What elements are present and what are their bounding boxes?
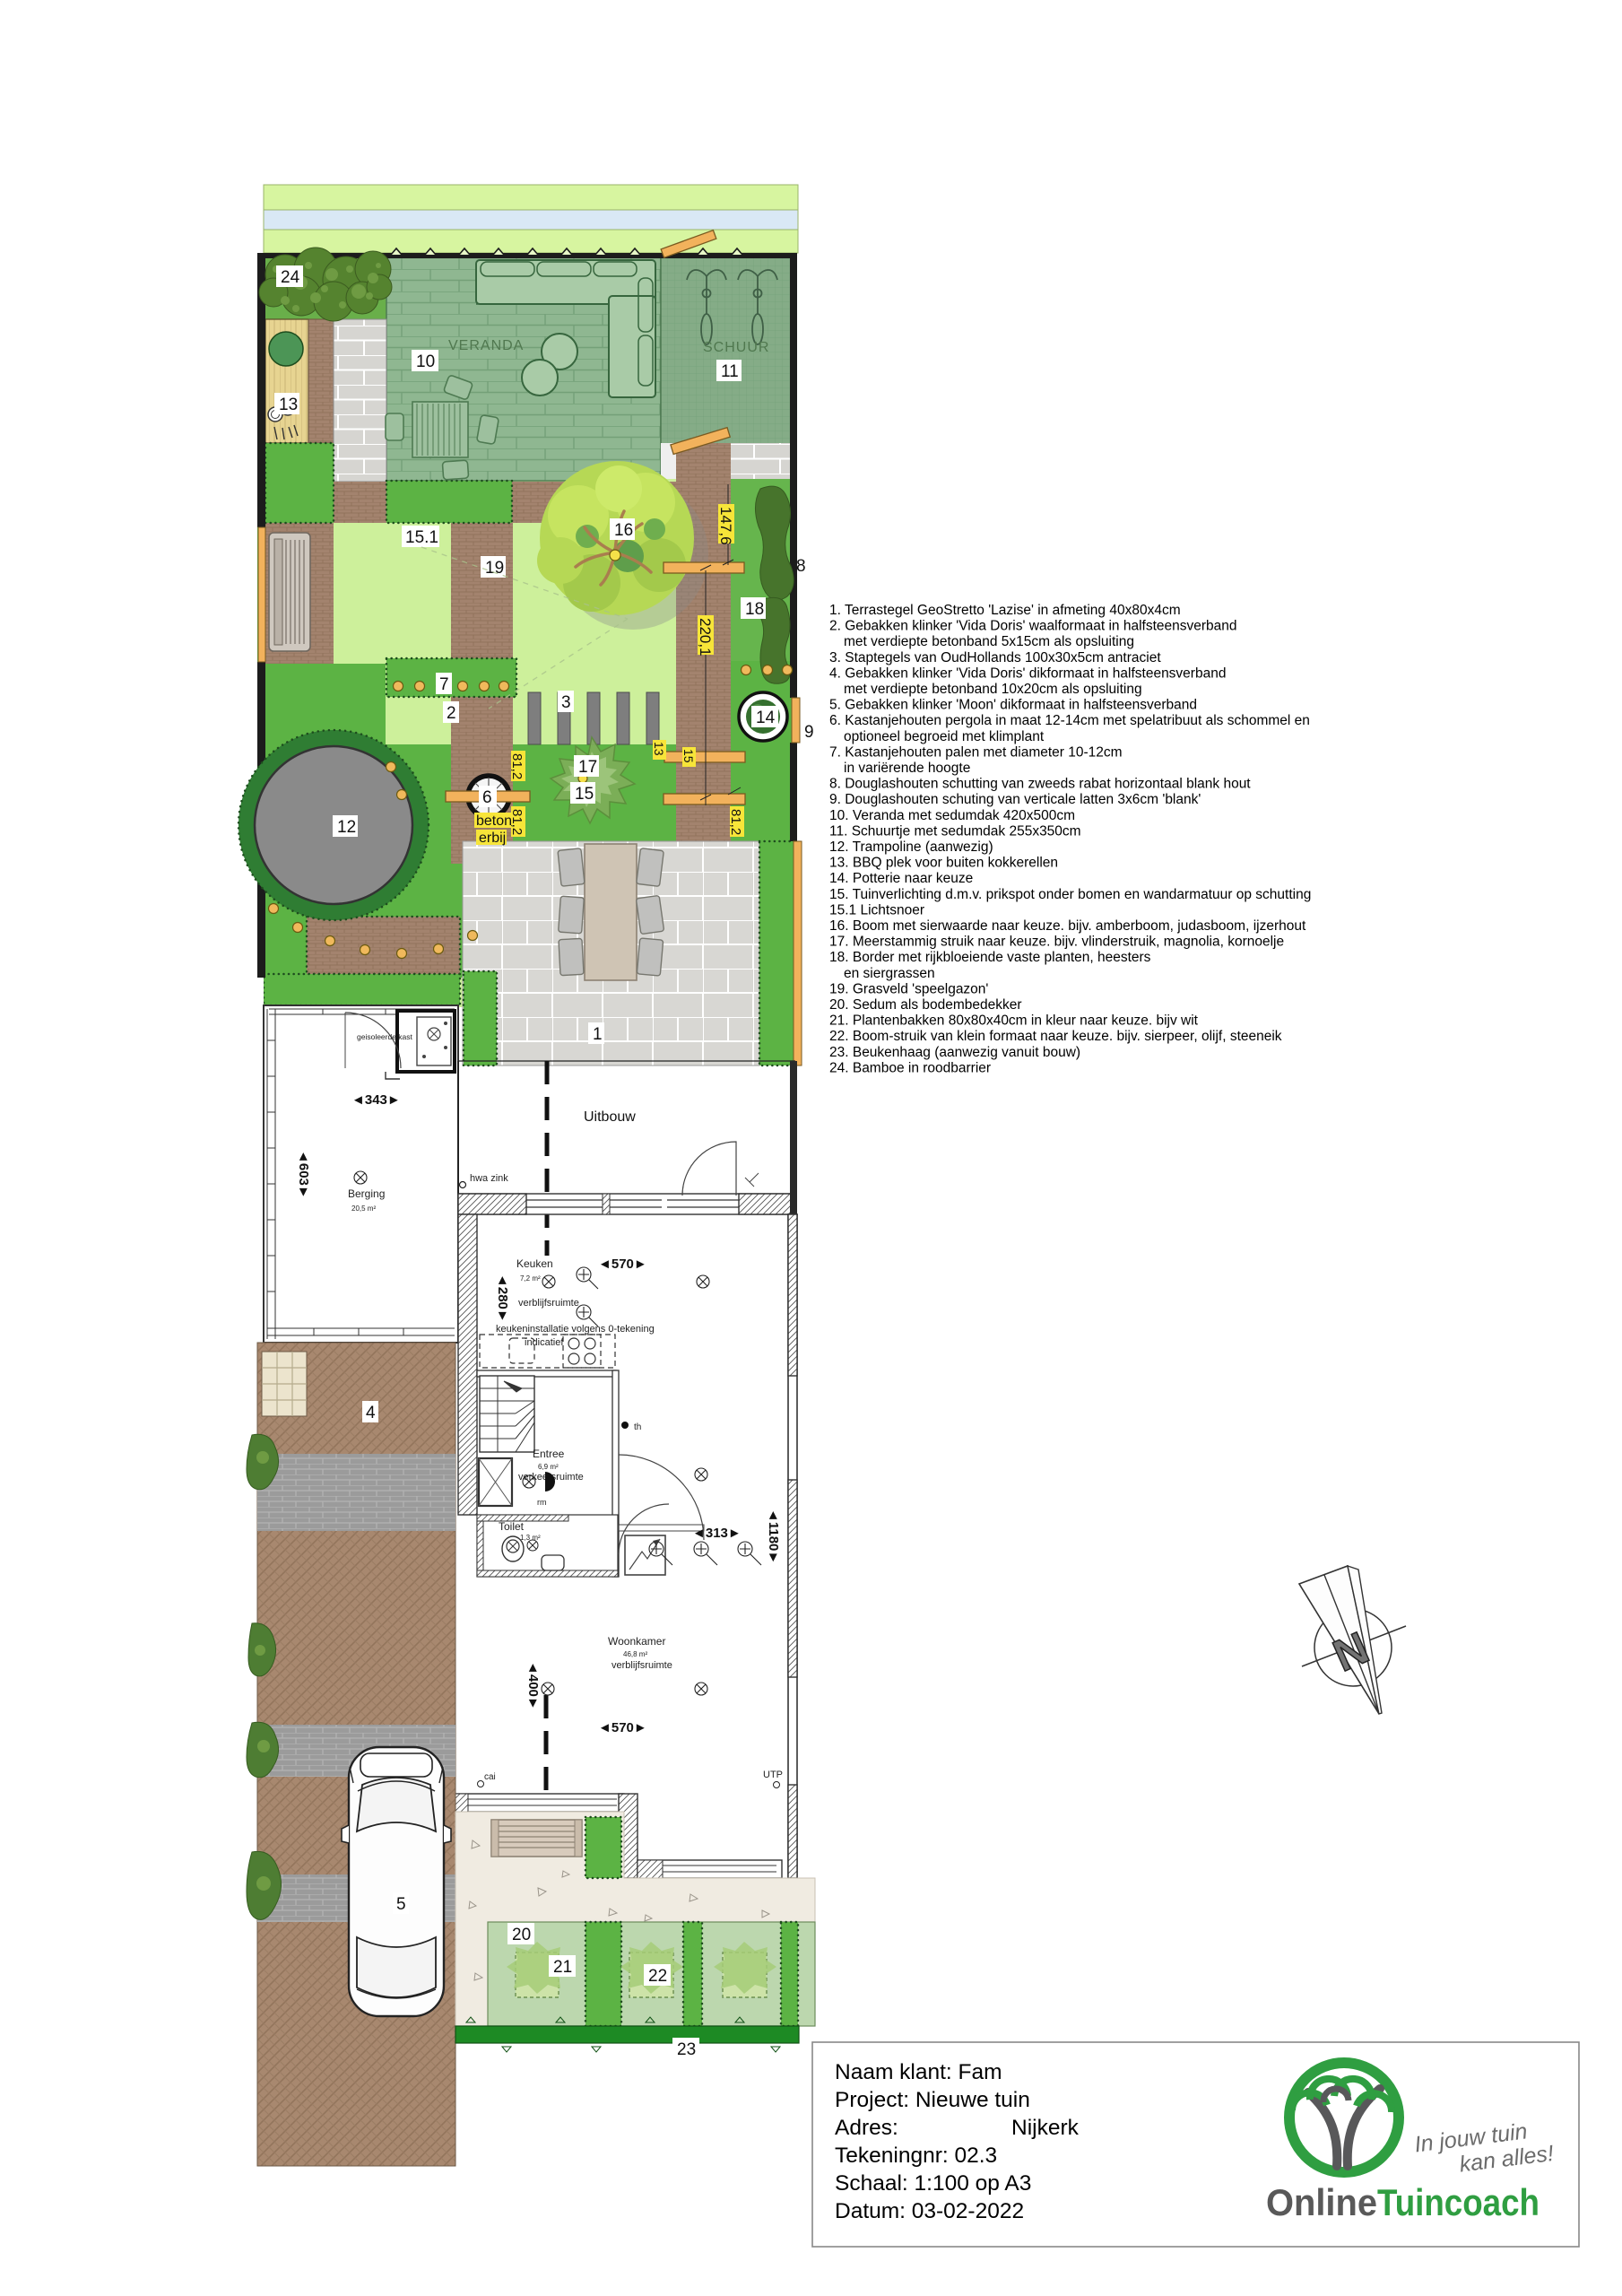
svg-text:indicatief: indicatief — [525, 1337, 564, 1348]
svg-text:Uitbouw: Uitbouw — [584, 1109, 636, 1125]
svg-text:23: 23 — [677, 2040, 696, 2059]
svg-text:15.1 Lichtsnoer: 15.1 Lichtsnoer — [829, 902, 924, 918]
svg-text:erbij: erbij — [479, 831, 506, 846]
svg-text:Berging: Berging — [348, 1187, 385, 1200]
svg-text:5. Gebakken klinker 'Moon' dik: 5. Gebakken klinker 'Moon' dikformaat in… — [829, 698, 1197, 713]
svg-text:Tekeningnr: 02.3: Tekeningnr: 02.3 — [835, 2144, 997, 2168]
svg-text:20,5 m²: 20,5 m² — [351, 1205, 376, 1213]
svg-text:10. Veranda met sedumdak 420x5: 10. Veranda met sedumdak 420x500cm — [829, 808, 1075, 823]
svg-text:23. Beukenhaag (aanwezig vanui: 23. Beukenhaag (aanwezig vanuit bouw) — [829, 1045, 1080, 1060]
svg-text:beton: beton — [476, 813, 512, 829]
svg-text:19: 19 — [485, 559, 504, 578]
svg-text:10: 10 — [416, 352, 435, 371]
svg-text:18: 18 — [745, 600, 764, 619]
svg-text:18. Border met rijkbloeiende v: 18. Border met rijkbloeiende vaste plant… — [829, 950, 1151, 965]
svg-text:geisoleerde kast: geisoleerde kast — [357, 1032, 413, 1041]
svg-text:8. Douglashouten schutting van: 8. Douglashouten schutting van zweeds ra… — [829, 777, 1251, 792]
svg-text:Adres:: Adres: — [835, 2116, 898, 2140]
svg-text:1. Terrastegel GeoStretto 'Laz: 1. Terrastegel GeoStretto 'Lazise' in af… — [829, 603, 1181, 618]
svg-text:met verdiepte betonband 5x15cm: met verdiepte betonband 5x15cm als opslu… — [844, 634, 1134, 649]
svg-text:th: th — [634, 1422, 641, 1432]
svg-text:2: 2 — [447, 704, 456, 723]
svg-text:met verdiepte betonband 10x20c: met verdiepte betonband 10x20cm als opsl… — [844, 682, 1142, 697]
svg-text:7,2 m²: 7,2 m² — [520, 1274, 541, 1283]
svg-text:◄570►: ◄570► — [598, 1257, 647, 1272]
svg-text:UTP: UTP — [763, 1770, 783, 1780]
svg-text:◄1180►: ◄1180► — [766, 1509, 781, 1564]
svg-text:9. Douglashouten schuting van: 9. Douglashouten schuting van verticale … — [829, 792, 1201, 807]
svg-text:20: 20 — [512, 1926, 531, 1944]
svg-text:16: 16 — [614, 521, 633, 540]
svg-text:6,9 m²: 6,9 m² — [538, 1463, 559, 1471]
svg-text:Naam klant: Fam: Naam klant: Fam — [835, 2060, 1002, 2084]
svg-text:16. Boom met sierwaarde naar k: 16. Boom met sierwaarde naar keuze. bijv… — [829, 918, 1306, 934]
svg-text:3. Staptegels van OudHollands: 3. Staptegels van OudHollands 100x30x5cm… — [829, 650, 1161, 665]
svg-text:◄400►: ◄400► — [525, 1661, 541, 1710]
svg-text:17: 17 — [578, 758, 597, 777]
svg-text:13: 13 — [279, 396, 298, 414]
svg-text:14. Potterie naar keuze: 14. Potterie naar keuze — [829, 871, 973, 886]
svg-text:220,1: 220,1 — [697, 618, 714, 657]
svg-text:13: 13 — [652, 742, 666, 756]
svg-text:◄280►: ◄280► — [495, 1274, 510, 1323]
svg-text:SCHUUR: SCHUUR — [703, 340, 769, 355]
svg-text:11: 11 — [721, 362, 739, 381]
svg-text:22. Boom-struik van klein form: 22. Boom-struik van klein formaat naar k… — [829, 1029, 1282, 1044]
svg-text:cai: cai — [484, 1772, 496, 1782]
svg-text:4: 4 — [366, 1404, 376, 1422]
svg-text:en siergrassen: en siergrassen — [844, 966, 935, 981]
svg-text:11. Schuurtje met sedumdak 255: 11. Schuurtje met sedumdak 255x350cm — [829, 823, 1081, 839]
svg-text:Tuincoach: Tuincoach — [1377, 2181, 1540, 2223]
svg-text:24. Bamboe in roodbarrier: 24. Bamboe in roodbarrier — [829, 1060, 991, 1075]
svg-text:7. Kastanjehouten palen met di: 7. Kastanjehouten palen met diameter 10-… — [829, 744, 1123, 760]
svg-text:19. Grasveld 'speelgazon': 19. Grasveld 'speelgazon' — [829, 981, 988, 996]
svg-text:Project: Nieuwe tuin: Project: Nieuwe tuin — [835, 2088, 1030, 2112]
svg-text:verblijfsruimte: verblijfsruimte — [518, 1298, 579, 1309]
svg-text:4. Gebakken klinker 'Vida Dori: 4. Gebakken klinker 'Vida Doris' dikform… — [829, 665, 1226, 681]
svg-text:1: 1 — [593, 1025, 603, 1044]
svg-text:Keuken: Keuken — [516, 1257, 553, 1270]
svg-text:hwa zink: hwa zink — [470, 1173, 508, 1184]
svg-text:in variërende hoogte: in variërende hoogte — [844, 761, 970, 776]
svg-text:keukeninstallatie volgens 0-te: keukeninstallatie volgens 0-tekening — [496, 1324, 655, 1335]
svg-text:optioneel begroeid met klimpla: optioneel begroeid met klimplant — [844, 729, 1045, 744]
svg-text:9: 9 — [804, 723, 814, 742]
svg-text:15: 15 — [681, 749, 696, 763]
svg-text:verblijfsruimte: verblijfsruimte — [612, 1660, 672, 1671]
svg-text:8: 8 — [796, 557, 806, 576]
svg-text:◄570►: ◄570► — [598, 1720, 647, 1735]
svg-text:81,2: 81,2 — [509, 753, 525, 779]
svg-text:2. Gebakken klinker 'Vida Dori: 2. Gebakken klinker 'Vida Doris' waalfor… — [829, 619, 1237, 634]
svg-text:21: 21 — [553, 1958, 572, 1977]
svg-text:◄603►: ◄603► — [296, 1150, 311, 1199]
svg-text:46,8 m²: 46,8 m² — [623, 1650, 647, 1658]
svg-text:14: 14 — [756, 709, 776, 727]
svg-text:6: 6 — [482, 788, 492, 807]
svg-text:15. Tuinverlichting d.m.v. pri: 15. Tuinverlichting d.m.v. prikspot onde… — [829, 887, 1311, 902]
svg-text:rm: rm — [537, 1498, 547, 1507]
svg-text:20. Sedum als bodembedekker: 20. Sedum als bodembedekker — [829, 997, 1022, 1013]
svg-text:◄343►: ◄343► — [351, 1092, 401, 1108]
svg-text:22: 22 — [648, 1967, 667, 1986]
svg-text:7: 7 — [439, 675, 449, 694]
svg-text:Online: Online — [1266, 2181, 1377, 2223]
svg-text:3: 3 — [561, 693, 571, 712]
svg-text:Nijkerk: Nijkerk — [1011, 2116, 1080, 2140]
svg-text:12. Trampoline (aanwezig): 12. Trampoline (aanwezig) — [829, 839, 993, 855]
svg-text:13. BBQ plek voor buiten kokke: 13. BBQ plek voor buiten kokkerellen — [829, 856, 1058, 871]
svg-text:Entree: Entree — [533, 1448, 565, 1460]
svg-text:12: 12 — [337, 818, 356, 837]
svg-text:147,6: 147,6 — [717, 507, 734, 545]
svg-text:21. Plantenbakken 80x80x40cm i: 21. Plantenbakken 80x80x40cm in kleur na… — [829, 1013, 1199, 1029]
svg-text:Schaal: 1:100 op A3: Schaal: 1:100 op A3 — [835, 2171, 1031, 2196]
svg-text:81,2: 81,2 — [728, 809, 743, 835]
svg-text:Woonkamer: Woonkamer — [608, 1635, 665, 1648]
svg-text:24: 24 — [281, 268, 300, 287]
svg-text:◄313►: ◄313► — [692, 1526, 742, 1541]
svg-text:5: 5 — [396, 1895, 406, 1914]
svg-text:Toilet: Toilet — [499, 1520, 525, 1533]
svg-text:17. Meerstammig struik naar ke: 17. Meerstammig struik naar keuze. bijv.… — [829, 935, 1284, 950]
svg-text:15: 15 — [575, 785, 594, 804]
svg-text:Datum: 03-02-2022: Datum: 03-02-2022 — [835, 2199, 1024, 2223]
svg-text:VERANDA: VERANDA — [448, 338, 524, 353]
svg-text:6. Kastanjehouten pergola in m: 6. Kastanjehouten pergola in maat 12-14c… — [829, 713, 1310, 728]
svg-text:15.1: 15.1 — [405, 528, 438, 547]
